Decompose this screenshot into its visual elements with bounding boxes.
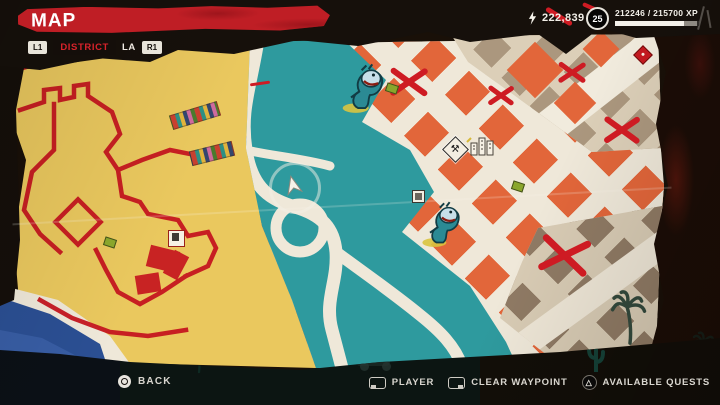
player-label: PLAYER [392, 377, 434, 388]
buildings-icon [466, 134, 496, 156]
xp-bar-pending [684, 21, 697, 26]
bottom-button-bar: BACK PLAYER CLEAR WAYPOINT △ AVAILABLE Q… [0, 373, 720, 395]
map-canvas[interactable]: ⚒ [0, 0, 720, 405]
poi-square-icon [168, 230, 185, 247]
back-button[interactable]: BACK [118, 375, 172, 388]
red-compound-wall-outline [0, 0, 720, 405]
action-buttons: PLAYER CLEAR WAYPOINT △ AVAILABLE QUESTS [369, 375, 710, 390]
clear-waypoint-label: CLEAR WAYPOINT [471, 377, 567, 388]
player-button[interactable]: PLAYER [369, 377, 434, 389]
scooter-wheel [382, 362, 391, 371]
zombie-threat-icon [420, 200, 464, 248]
crossed-out-x-mark [558, 58, 586, 84]
map-title-banner: MAP [18, 4, 330, 34]
touchpad-swipe-right-icon [448, 377, 465, 389]
back-label: BACK [138, 376, 172, 387]
player-position-arrow [283, 174, 303, 196]
currency-amount: 222,839 [542, 12, 585, 24]
available-quests-button[interactable]: △ AVAILABLE QUESTS [582, 375, 710, 390]
available-quests-label: AVAILABLE QUESTS [603, 377, 710, 388]
l1-button[interactable]: L1 [28, 41, 47, 54]
clear-waypoint-button[interactable]: CLEAR WAYPOINT [448, 377, 567, 389]
poi-square-icon [412, 190, 425, 203]
circle-button-icon [118, 375, 131, 388]
level-readout: 25 212246 / 215700 XP [586, 7, 699, 30]
lightning-icon [528, 11, 537, 25]
currency-readout: 222,839 [528, 11, 585, 25]
hammer-glyph: ⚒ [451, 145, 460, 155]
map-screen: ⚒ MAP L1 DISTRICT LA R1 [0, 0, 720, 405]
r1-button[interactable]: R1 [142, 41, 162, 54]
crossed-out-x-mark [488, 80, 514, 108]
zombie-threat-icon [340, 62, 388, 114]
crossed-out-x-mark [604, 112, 640, 144]
district-selector: L1 DISTRICT LA R1 [28, 40, 162, 55]
tab-district[interactable]: DISTRICT [53, 40, 116, 55]
level-badge: 25 [586, 7, 609, 30]
triangle-button-icon: △ [582, 375, 597, 390]
page-title: MAP [31, 10, 76, 32]
xp-text: 212246 / 215700 XP [615, 8, 699, 18]
touchpad-swipe-left-icon [369, 377, 386, 389]
tab-la[interactable]: LA [122, 42, 136, 53]
xp-bar [615, 21, 699, 26]
xp-bar-fill [615, 21, 684, 26]
crossed-out-x-mark [536, 219, 594, 287]
